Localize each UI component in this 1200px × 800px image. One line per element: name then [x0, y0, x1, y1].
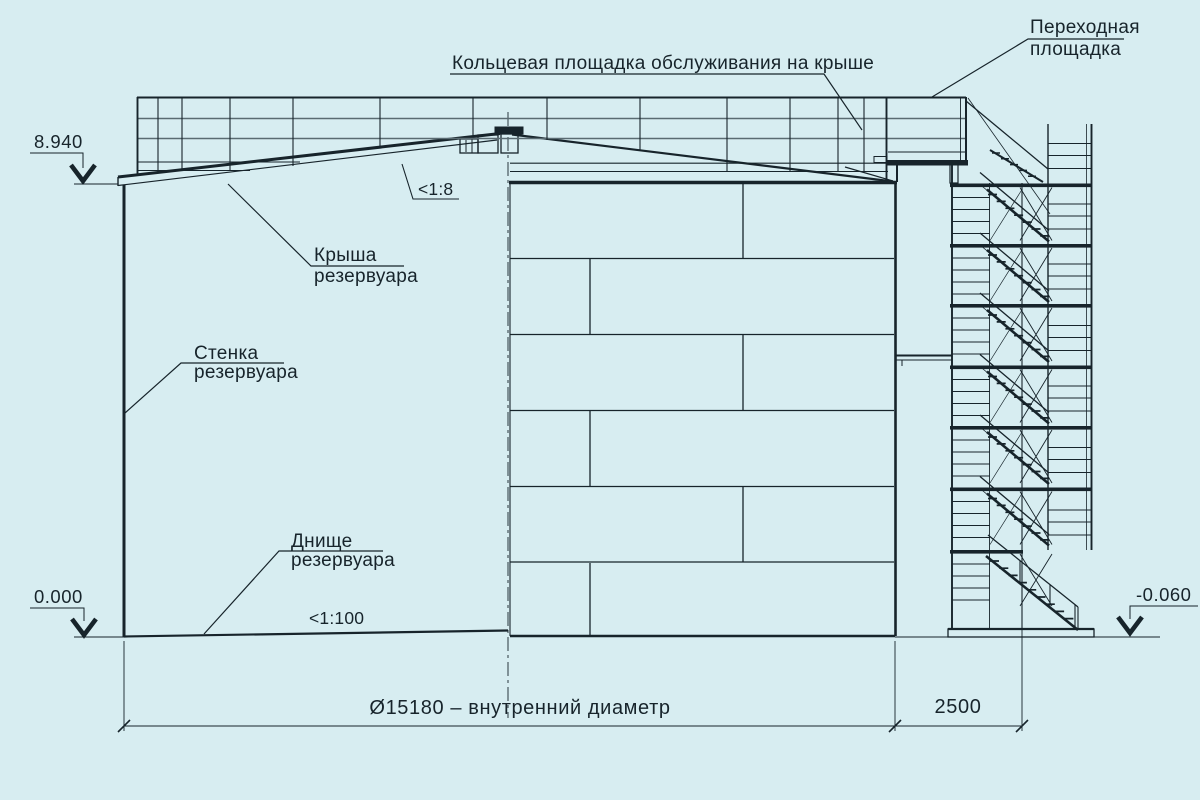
inner-diameter-text: Ø15180 – внутренний диаметр	[369, 697, 670, 719]
shell-courses	[510, 183, 894, 636]
label-bottom: Днище резервуара	[204, 531, 395, 634]
tank-section-drawing: Ø15180 – внутренний диаметр 2500 8.940 0…	[0, 0, 1200, 800]
ring-platform-text: Кольцевая площадка обслуживания на крыше	[452, 53, 874, 74]
stair-bottom-flight	[986, 535, 1078, 630]
label-bottom-slope: <1:100	[309, 608, 364, 628]
elevation-mark-roof: 8.940	[30, 131, 118, 184]
tank-body	[118, 112, 897, 718]
label-transition-platform: Переходная площадка	[932, 17, 1140, 97]
dimension-inner-diameter: Ø15180 – внутренний диаметр 2500	[118, 602, 1028, 732]
tank-roof-cone-edge	[512, 135, 893, 182]
stair-offset-text: 2500	[935, 696, 982, 718]
bottom-text-1: Днище	[291, 531, 352, 552]
mid-walkway	[895, 356, 952, 367]
wall-text-2: резервуара	[194, 362, 298, 383]
roof-text-1: Крыша	[314, 245, 377, 266]
bottom-text-2: резервуара	[291, 550, 395, 571]
label-roof: Крыша резервуара	[228, 184, 418, 287]
elevation-zero-value: 0.000	[34, 586, 83, 607]
transition-platform-text-1: Переходная	[1030, 17, 1140, 38]
stair-posts	[952, 124, 1092, 630]
elevation-mark-ground: -0.060	[1118, 584, 1198, 633]
label-roof-slope: <1:8	[402, 164, 459, 199]
stair-base-plate	[948, 629, 1094, 637]
elevation-roof-value: 8.940	[34, 131, 83, 152]
technical-drawing-page: Ø15180 – внутренний диаметр 2500 8.940 0…	[0, 0, 1200, 800]
roof-text-2: резервуара	[314, 266, 418, 287]
elevation-ground-value: -0.060	[1136, 584, 1191, 605]
wall-text-1: Стенка	[194, 343, 258, 364]
transition-platform-text-2: площадка	[1030, 39, 1121, 60]
roof-slope-text: <1:8	[418, 179, 453, 199]
staircase	[895, 98, 1160, 637]
transition-platform	[874, 97, 968, 183]
elevation-mark-zero: 0.000	[30, 586, 124, 637]
bottom-slope-text: <1:100	[309, 608, 364, 628]
roof-vent-fitting	[460, 127, 523, 153]
label-wall: Стенка резервуара	[125, 343, 298, 413]
